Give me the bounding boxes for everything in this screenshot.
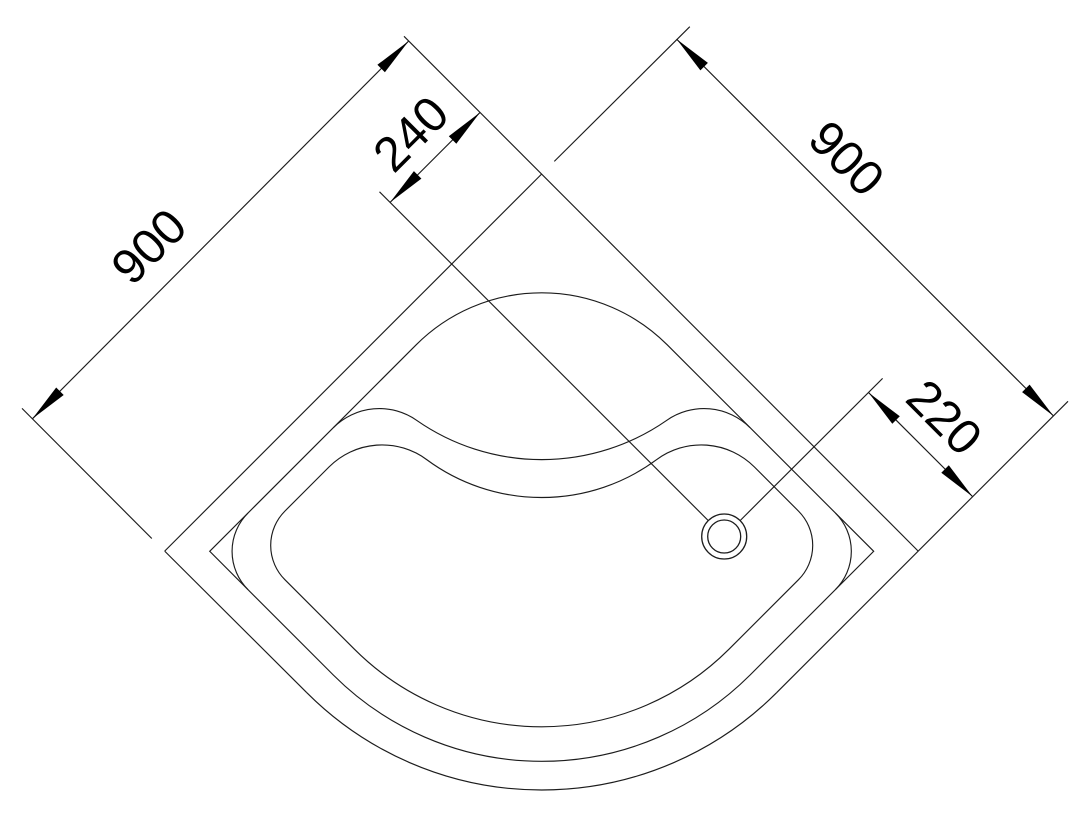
svg-text:240: 240 <box>363 86 459 182</box>
svg-text:900: 900 <box>798 111 894 207</box>
svg-text:220: 220 <box>896 370 992 466</box>
svg-text:900: 900 <box>101 199 197 295</box>
